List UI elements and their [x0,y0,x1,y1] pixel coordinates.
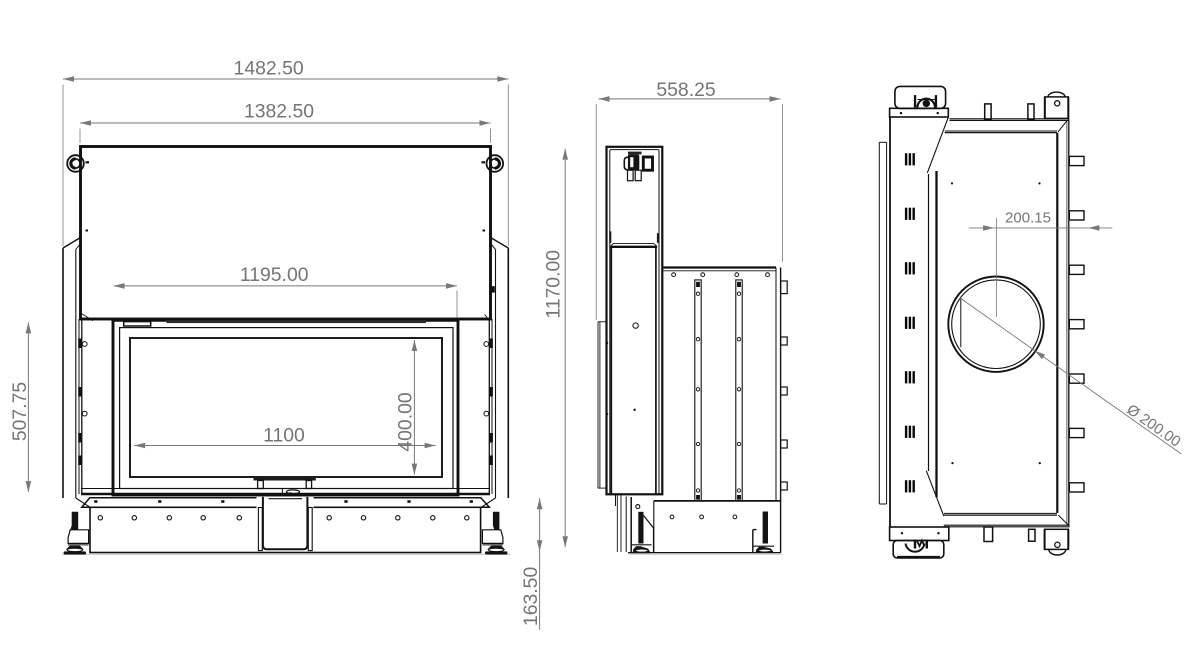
svg-text:558.25: 558.25 [656,79,715,101]
svg-text:507.75: 507.75 [9,382,31,441]
svg-text:1100: 1100 [263,425,305,447]
svg-text:200.15: 200.15 [1005,210,1051,227]
svg-text:1382.50: 1382.50 [244,101,314,123]
svg-text:1195.00: 1195.00 [240,264,309,286]
svg-text:163.50: 163.50 [520,567,542,627]
svg-text:1482.50: 1482.50 [234,58,304,80]
svg-text:400.00: 400.00 [395,392,417,452]
svg-text:1170.00: 1170.00 [543,250,565,319]
